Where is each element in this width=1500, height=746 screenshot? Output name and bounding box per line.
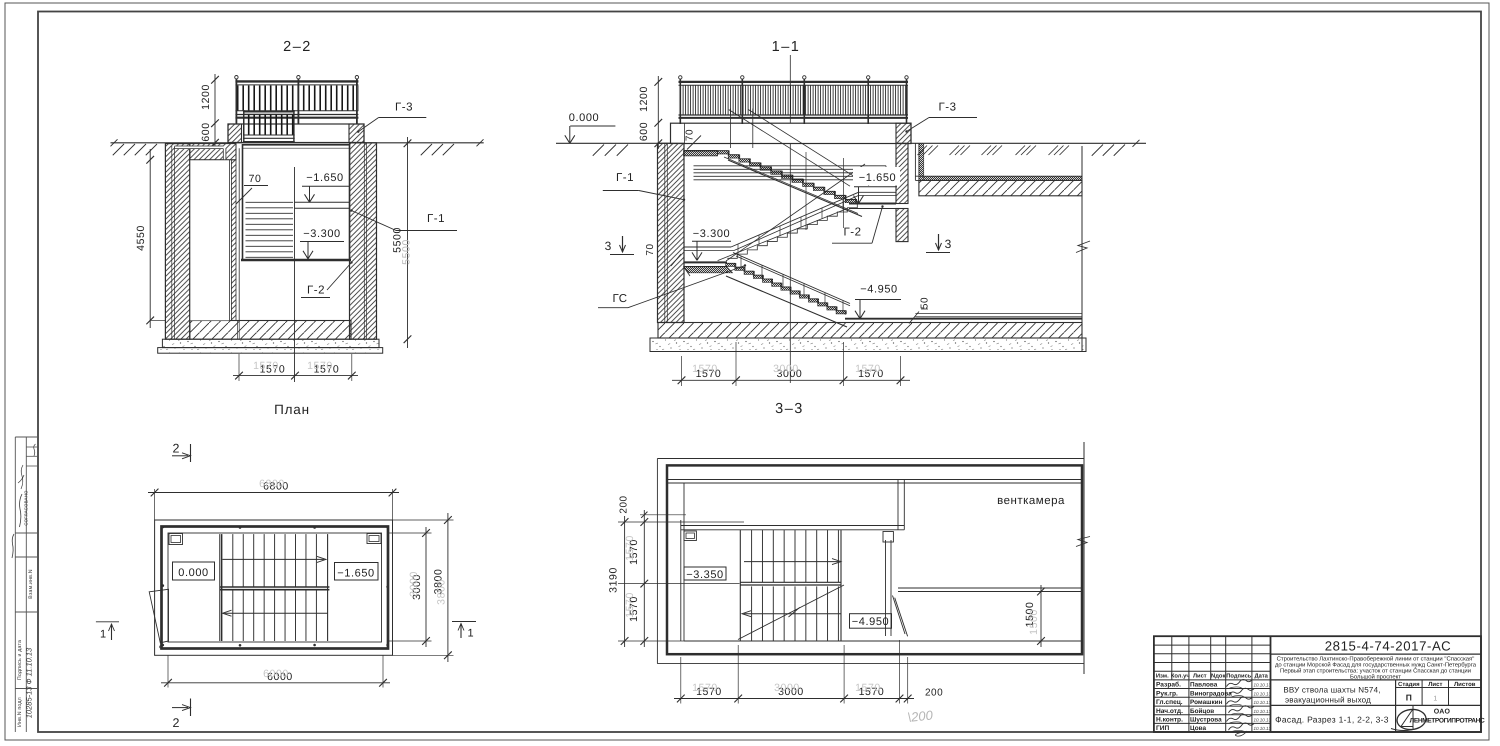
svg-text:венткамера: венткамера [997, 495, 1065, 507]
svg-text:−3.350: −3.350 [686, 569, 724, 581]
svg-text:3000: 3000 [408, 571, 420, 597]
svg-text:10.10.13: 10.10.13 [1254, 700, 1272, 705]
svg-text:Бойцов: Бойцов [1190, 708, 1214, 715]
svg-text:до станции Морской Фасад для г: до станции Морской Фасад для государстве… [1275, 661, 1477, 668]
svg-text:1570: 1570 [692, 363, 718, 375]
svg-text:70: 70 [645, 243, 656, 255]
svg-text:5500: 5500 [401, 239, 413, 265]
svg-text:10.10.13: 10.10.13 [1254, 718, 1272, 723]
svg-text:Первый этап строительства: уча: Первый этап строительства: участок от ст… [1280, 667, 1471, 674]
svg-text:Лист: Лист [1428, 681, 1442, 688]
svg-text:1: 1 [1433, 696, 1437, 703]
svg-text:Большой проспект: Большой проспект [1350, 673, 1401, 680]
svg-text:600: 600 [638, 122, 650, 141]
svg-text:1: 1 [100, 629, 106, 641]
svg-text:Ромашкин: Ромашкин [1190, 699, 1223, 706]
svg-text:Гл.спец.: Гл.спец. [1156, 699, 1183, 706]
svg-text:−3.300: −3.300 [693, 228, 731, 240]
svg-text:3: 3 [945, 237, 952, 251]
svg-text:ОАО: ОАО [1434, 709, 1451, 716]
svg-text:0.000: 0.000 [569, 112, 600, 124]
svg-text:Листов: Листов [1454, 681, 1476, 688]
svg-text:3000: 3000 [774, 682, 800, 694]
svg-text:1570: 1570 [253, 360, 279, 372]
svg-text:6800: 6800 [259, 478, 285, 490]
svg-text:Лист: Лист [1193, 674, 1207, 680]
svg-text:3–3: 3–3 [775, 401, 804, 417]
svg-text:50: 50 [920, 297, 931, 309]
svg-text:1200: 1200 [200, 84, 212, 110]
svg-text:Nдок: Nдок [1211, 674, 1225, 680]
svg-text:ЛЕНМЕТРОГИПРОТРАНС: ЛЕНМЕТРОГИПРОТРАНС [1410, 717, 1485, 724]
svg-text:−1.650: −1.650 [306, 172, 344, 184]
svg-text:Разраб.: Разраб. [1156, 682, 1181, 689]
svg-text:2–2: 2–2 [283, 39, 312, 55]
svg-text:1: 1 [467, 628, 473, 640]
svg-text:0.000: 0.000 [178, 567, 209, 579]
svg-text:3000: 3000 [773, 363, 799, 375]
svg-text:Г-1: Г-1 [427, 213, 445, 225]
svg-text:−1.650: −1.650 [859, 172, 897, 184]
svg-text:1500: 1500 [1028, 609, 1040, 635]
svg-text:ГИП: ГИП [1156, 725, 1169, 732]
svg-text:1–1: 1–1 [772, 39, 801, 55]
svg-text:ВВУ ствола шахты N574,: ВВУ ствола шахты N574, [1283, 686, 1380, 695]
svg-text:1200: 1200 [638, 86, 650, 112]
svg-text:200: 200 [925, 688, 943, 699]
svg-text:План: План [274, 402, 310, 417]
svg-text:\200: \200 [907, 707, 934, 725]
svg-text:Фасад. Разрез 1-1, 2-2, 3-3: Фасад. Разрез 1-1, 2-2, 3-3 [1275, 715, 1389, 725]
svg-text:2815-4-74-2017-АС: 2815-4-74-2017-АС [1325, 638, 1451, 653]
svg-text:Г-2: Г-2 [844, 227, 862, 239]
svg-text:−3.300: −3.300 [303, 228, 341, 240]
svg-text:−4.950: −4.950 [852, 616, 890, 628]
svg-text:ГС: ГС [612, 293, 627, 305]
svg-text:Рук.гр.: Рук.гр. [1156, 690, 1178, 697]
svg-text:−4.950: −4.950 [860, 284, 898, 296]
svg-text:1570: 1570 [307, 360, 333, 372]
svg-text:Строительство Лахтинско-Правоб: Строительство Лахтинско-Правобережной ли… [1277, 655, 1475, 662]
svg-text:2: 2 [173, 716, 180, 730]
svg-text:4550: 4550 [135, 225, 147, 251]
svg-text:Г-1: Г-1 [616, 172, 634, 184]
svg-text:1570: 1570 [624, 535, 636, 561]
svg-text:Цова: Цова [1190, 725, 1206, 732]
svg-text:Взам.инв.N: Взам.инв.N [28, 569, 34, 598]
svg-text:Дата: Дата [1254, 674, 1268, 680]
svg-text:600: 600 [200, 122, 212, 141]
svg-text:Г-2: Г-2 [307, 285, 325, 297]
svg-text:3: 3 [605, 239, 612, 253]
svg-text:10.10.13: 10.10.13 [1254, 726, 1272, 731]
svg-text:Н.контр.: Н.контр. [1156, 717, 1183, 724]
svg-text:10.10.13: 10.10.13 [1254, 709, 1272, 714]
svg-text:Подпись: Подпись [1226, 674, 1252, 680]
svg-text:10.10.13: 10.10.13 [1254, 683, 1272, 688]
svg-text:Стадия: Стадия [1398, 681, 1420, 688]
svg-text:6000: 6000 [263, 668, 289, 680]
svg-text:Кол.уч: Кол.уч [1171, 674, 1190, 680]
svg-text:Виноградова: Виноградова [1190, 690, 1232, 697]
svg-text:1570: 1570 [692, 682, 718, 694]
svg-text:70: 70 [685, 129, 696, 141]
svg-text:1570: 1570 [624, 592, 636, 618]
svg-text:Г-3: Г-3 [395, 102, 413, 114]
svg-text:СОГЛАСОВАНО: СОГЛАСОВАНО [23, 490, 28, 526]
svg-text:Павлова: Павлова [1190, 682, 1218, 689]
svg-text:200: 200 [619, 495, 630, 513]
svg-text:Изм.: Изм. [1156, 674, 1169, 680]
svg-text:3800: 3800 [436, 579, 448, 605]
svg-text:2: 2 [173, 442, 180, 456]
svg-text:Подпись и дата: Подпись и дата [17, 640, 23, 680]
svg-text:Шустрова: Шустрова [1190, 717, 1222, 724]
svg-text:Г-3: Г-3 [939, 102, 957, 114]
svg-text:П: П [1406, 693, 1412, 703]
svg-text:70: 70 [249, 173, 262, 185]
svg-text:Нач.отд.: Нач.отд. [1156, 708, 1183, 715]
svg-text:10285-13 Ф 11.10.13: 10285-13 Ф 11.10.13 [25, 647, 34, 718]
svg-text:Инв.N подл: Инв.N подл [17, 697, 23, 727]
svg-text:1570: 1570 [855, 682, 881, 694]
svg-text:эвакуационный выход: эвакуационный выход [1285, 696, 1371, 705]
svg-text:10.10.13: 10.10.13 [1254, 691, 1272, 696]
svg-text:−1.650: −1.650 [337, 567, 375, 579]
svg-text:1570: 1570 [855, 363, 881, 375]
svg-text:3190: 3190 [608, 567, 620, 593]
